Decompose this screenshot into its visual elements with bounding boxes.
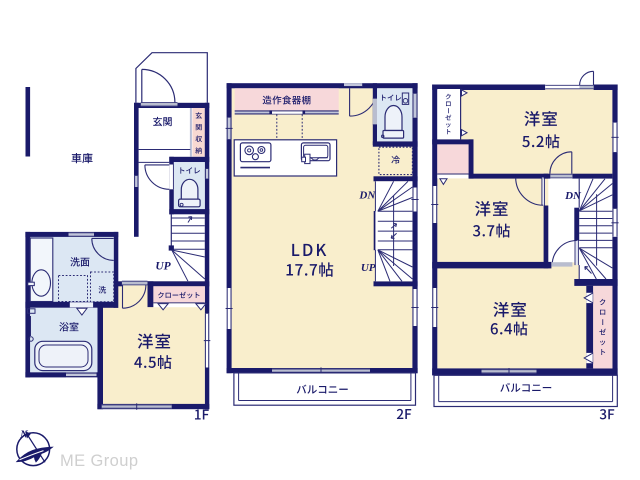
svg-text:N: N xyxy=(19,430,28,441)
svg-text:DN: DN xyxy=(358,190,376,202)
svg-text:UP: UP xyxy=(155,261,171,273)
svg-text:DN: DN xyxy=(564,190,582,202)
svg-text:UP: UP xyxy=(361,262,376,274)
svg-text:ME Group: ME Group xyxy=(60,452,138,470)
